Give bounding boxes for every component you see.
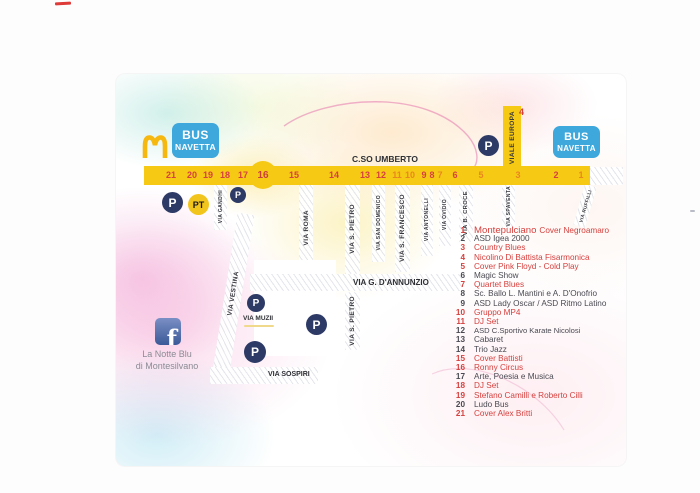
street-label: VIA G. D'ANNUNZIO bbox=[353, 278, 429, 287]
legend-item: 4Nicolino Di Battista Fisarmonica bbox=[443, 253, 590, 262]
parking-letter: P bbox=[168, 196, 176, 210]
parking-icon: P bbox=[306, 314, 327, 335]
legend-item: 8Sc. Ballo L. Mantini e A. D'Onofrio bbox=[443, 289, 597, 298]
street-label: VIA ROMA bbox=[303, 210, 310, 245]
legend-text: DJ Set bbox=[474, 381, 499, 390]
street-via-s-francesco: VIA S. FRANCESCO bbox=[395, 184, 410, 272]
street-label: VIA S. PIETRO bbox=[349, 204, 356, 254]
legend-item: 10Gruppo MP4 bbox=[443, 308, 520, 317]
legend-number: 19 bbox=[443, 391, 465, 400]
bus-label: BUS bbox=[564, 131, 589, 144]
street-label: VIA SOSPIRI bbox=[268, 371, 310, 378]
road-label-corso-umberto: C.SO UMBERTO bbox=[352, 154, 418, 164]
decorative-line bbox=[244, 325, 274, 327]
parking-letter: P bbox=[253, 298, 260, 309]
legend-text: Nicolino Di Battista Fisarmonica bbox=[474, 253, 590, 262]
mcdonalds-arches-icon bbox=[141, 134, 169, 164]
legend-text: ASD Igea 2000 bbox=[474, 234, 530, 243]
street-label: VIA VESTINA bbox=[227, 270, 241, 316]
bus-stop-7: 7 bbox=[437, 170, 442, 180]
scanned-event-map: VIA GANDHI VIA VESTINA VIA ROMA VIA S. P… bbox=[0, 0, 700, 493]
scan-speck bbox=[55, 2, 71, 6]
legend-item: 3Country Blues bbox=[443, 243, 525, 252]
bus-stop-11: 11 bbox=[392, 170, 402, 180]
bus-stop-12: 12 bbox=[376, 170, 386, 180]
bus-stop-9: 9 bbox=[421, 170, 426, 180]
legend-text-suffix: Cover Negroamaro bbox=[539, 226, 609, 235]
legend-number: 7 bbox=[443, 280, 465, 289]
bus-label: BUS bbox=[182, 129, 209, 143]
parking-letter: P bbox=[312, 318, 320, 332]
bus-stop-13: 13 bbox=[360, 170, 370, 180]
legend-item: 2ASD Igea 2000 bbox=[443, 234, 530, 243]
street-via-san-domenico: VIA SAN DOMENICO bbox=[372, 184, 385, 262]
legend-item: 15Cover Battisti bbox=[443, 354, 523, 363]
legend-number: 6 bbox=[443, 271, 465, 280]
legend-text: Ronny Circus bbox=[474, 363, 523, 372]
legend-text: Cover Pink Floyd - Cold Play bbox=[474, 262, 579, 271]
legend-text: ASD Lady Oscar / ASD Ritmo Latino bbox=[474, 299, 606, 308]
bus-stop-3: 3 bbox=[515, 170, 520, 180]
legend-number: 18 bbox=[443, 381, 465, 390]
legend-item: 6Magic Show bbox=[443, 271, 519, 280]
legend-number: 21 bbox=[443, 409, 465, 418]
legend-number: 2 bbox=[443, 234, 465, 243]
bus-label: NAVETTA bbox=[175, 143, 216, 153]
bus-stop-20: 20 bbox=[187, 170, 197, 180]
bus-stop-19: 19 bbox=[203, 170, 213, 180]
legend-text: Cover Alex Britti bbox=[474, 409, 532, 418]
legend-number: 17 bbox=[443, 372, 465, 381]
legend-item: 21Cover Alex Britti bbox=[443, 409, 532, 418]
bus-stop-21: 21 bbox=[166, 170, 176, 180]
bus-stop-5: 5 bbox=[478, 170, 483, 180]
hub-number: 16 bbox=[257, 170, 268, 181]
street-via-spaventa: VIA SPAVENTA bbox=[502, 184, 515, 228]
legend-text: Stefano Camilli e Roberto Cilli bbox=[474, 391, 583, 400]
legend-number: 9 bbox=[443, 299, 465, 308]
bus-stop-8: 8 bbox=[429, 170, 434, 180]
bus-stop-10: 10 bbox=[405, 170, 415, 180]
legend-number: 20 bbox=[443, 400, 465, 409]
legend-text: DJ Set bbox=[474, 317, 499, 326]
legend-item: 13Cabaret bbox=[443, 335, 503, 344]
legend-text: Cabaret bbox=[474, 335, 503, 344]
legend-number: 14 bbox=[443, 345, 465, 354]
street-label: VIA GANDHI bbox=[218, 190, 224, 223]
legend-text: Quartet Blues bbox=[474, 280, 524, 289]
facebook-f: f bbox=[167, 324, 177, 345]
legend-item: 18DJ Set bbox=[443, 381, 499, 390]
bus-stop-1: 1 bbox=[578, 170, 583, 180]
street-label: VIA S. FRANCESCO bbox=[399, 194, 406, 262]
street-label: VIA ANTONELLI bbox=[424, 198, 430, 241]
bus-stop-4: 4 bbox=[519, 107, 524, 117]
legend-text: Gruppo MP4 bbox=[474, 308, 520, 317]
legend-number: 8 bbox=[443, 289, 465, 298]
legend-item: 14Trio Jazz bbox=[443, 345, 507, 354]
legend-number: 4 bbox=[443, 253, 465, 262]
parking-icon: P bbox=[162, 192, 183, 213]
scan-speck bbox=[690, 210, 695, 212]
legend-item: 20Ludo Bus bbox=[443, 400, 509, 409]
event-name-line1: La Notte Blu bbox=[107, 349, 227, 359]
legend-item: 17Arte, Poesia e Musica bbox=[443, 372, 554, 381]
legend-item: 1MontepulcianoCover Negroamaro bbox=[443, 225, 609, 234]
legend-number: 11 bbox=[443, 317, 465, 326]
street-via-roma: VIA ROMA bbox=[299, 184, 313, 272]
bus-stop-16-hub: 16 bbox=[249, 161, 277, 189]
street-via-dannunzio: VIA G. D'ANNUNZIO bbox=[250, 274, 462, 291]
legend-number: 5 bbox=[443, 262, 465, 271]
road-corso-umberto: 21 20 19 18 17 15 14 13 12 11 10 9 8 7 6… bbox=[144, 166, 590, 185]
event-name-line2: di Montesilvano bbox=[107, 361, 227, 371]
legend-text: Ludo Bus bbox=[474, 400, 509, 409]
legend-number: 13 bbox=[443, 335, 465, 344]
legend-number: 16 bbox=[443, 363, 465, 372]
legend-item: 19Stefano Camilli e Roberto Cilli bbox=[443, 391, 583, 400]
parking-icon: P bbox=[244, 341, 266, 363]
parking-icon: P bbox=[247, 294, 265, 312]
legend-text: Trio Jazz bbox=[474, 345, 507, 354]
bus-stop-2: 2 bbox=[553, 170, 558, 180]
bus-stop-17: 17 bbox=[238, 170, 248, 180]
parking-letter: P bbox=[251, 345, 259, 359]
legend-number: 10 bbox=[443, 308, 465, 317]
street-label: VIA S. PIETRO bbox=[349, 296, 356, 346]
pt-letters: PT bbox=[193, 200, 205, 210]
parking-bus-icon: PT bbox=[188, 194, 209, 215]
street-label-via-muzii: VIA MUZII bbox=[243, 315, 273, 322]
legend-text: Arte, Poesia e Musica bbox=[474, 372, 554, 381]
street-via-s-pietro-south: VIA S. PIETRO bbox=[345, 292, 360, 350]
legend-item: 16Ronny Circus bbox=[443, 363, 523, 372]
legend-text: Country Blues bbox=[474, 243, 525, 252]
legend-text: Magic Show bbox=[474, 271, 519, 280]
legend-item: 12ASD C.Sportivo Karate Nicolosi bbox=[443, 326, 580, 335]
bus-stop-6: 6 bbox=[452, 170, 457, 180]
bus-stop-14: 14 bbox=[329, 170, 339, 180]
bus-navetta-badge-left: BUS NAVETTA bbox=[172, 123, 219, 158]
parking-icon: P bbox=[230, 187, 246, 203]
legend-text: Sc. Ballo L. Mantini e A. D'Onofrio bbox=[474, 289, 597, 298]
street-via-antonelli: VIA ANTONELLI bbox=[421, 184, 433, 256]
bus-stop-15: 15 bbox=[289, 170, 299, 180]
bus-stop-18: 18 bbox=[220, 170, 230, 180]
legend-item: 9ASD Lady Oscar / ASD Ritmo Latino bbox=[443, 299, 606, 308]
legend-text: ASD C.Sportivo Karate Nicolosi bbox=[474, 326, 580, 335]
street-label: VIA SPAVENTA bbox=[506, 186, 512, 226]
legend-item: 11DJ Set bbox=[443, 317, 499, 326]
parking-letter: P bbox=[484, 139, 492, 153]
bus-navetta-badge-right: BUS NAVETTA bbox=[553, 126, 600, 158]
legend-item: 7Quartet Blues bbox=[443, 280, 524, 289]
legend-item: 5Cover Pink Floyd - Cold Play bbox=[443, 262, 579, 271]
facebook-icon: f bbox=[155, 318, 181, 345]
parking-icon: P bbox=[478, 135, 499, 156]
parking-letter: P bbox=[235, 190, 241, 200]
legend-number: 12 bbox=[443, 326, 465, 335]
street-label: VIA SAN DOMENICO bbox=[376, 195, 382, 250]
legend-number: 15 bbox=[443, 354, 465, 363]
legend-text: Cover Battisti bbox=[474, 354, 523, 363]
road-label: VIALE EUROPA bbox=[509, 111, 516, 164]
street-via-s-pietro-north: VIA S. PIETRO bbox=[345, 184, 360, 274]
street-via-gandhi: VIA GANDHI bbox=[214, 184, 227, 230]
street-corso-continuation bbox=[590, 167, 623, 185]
bus-label: NAVETTA bbox=[557, 144, 596, 153]
legend-number: 3 bbox=[443, 243, 465, 252]
